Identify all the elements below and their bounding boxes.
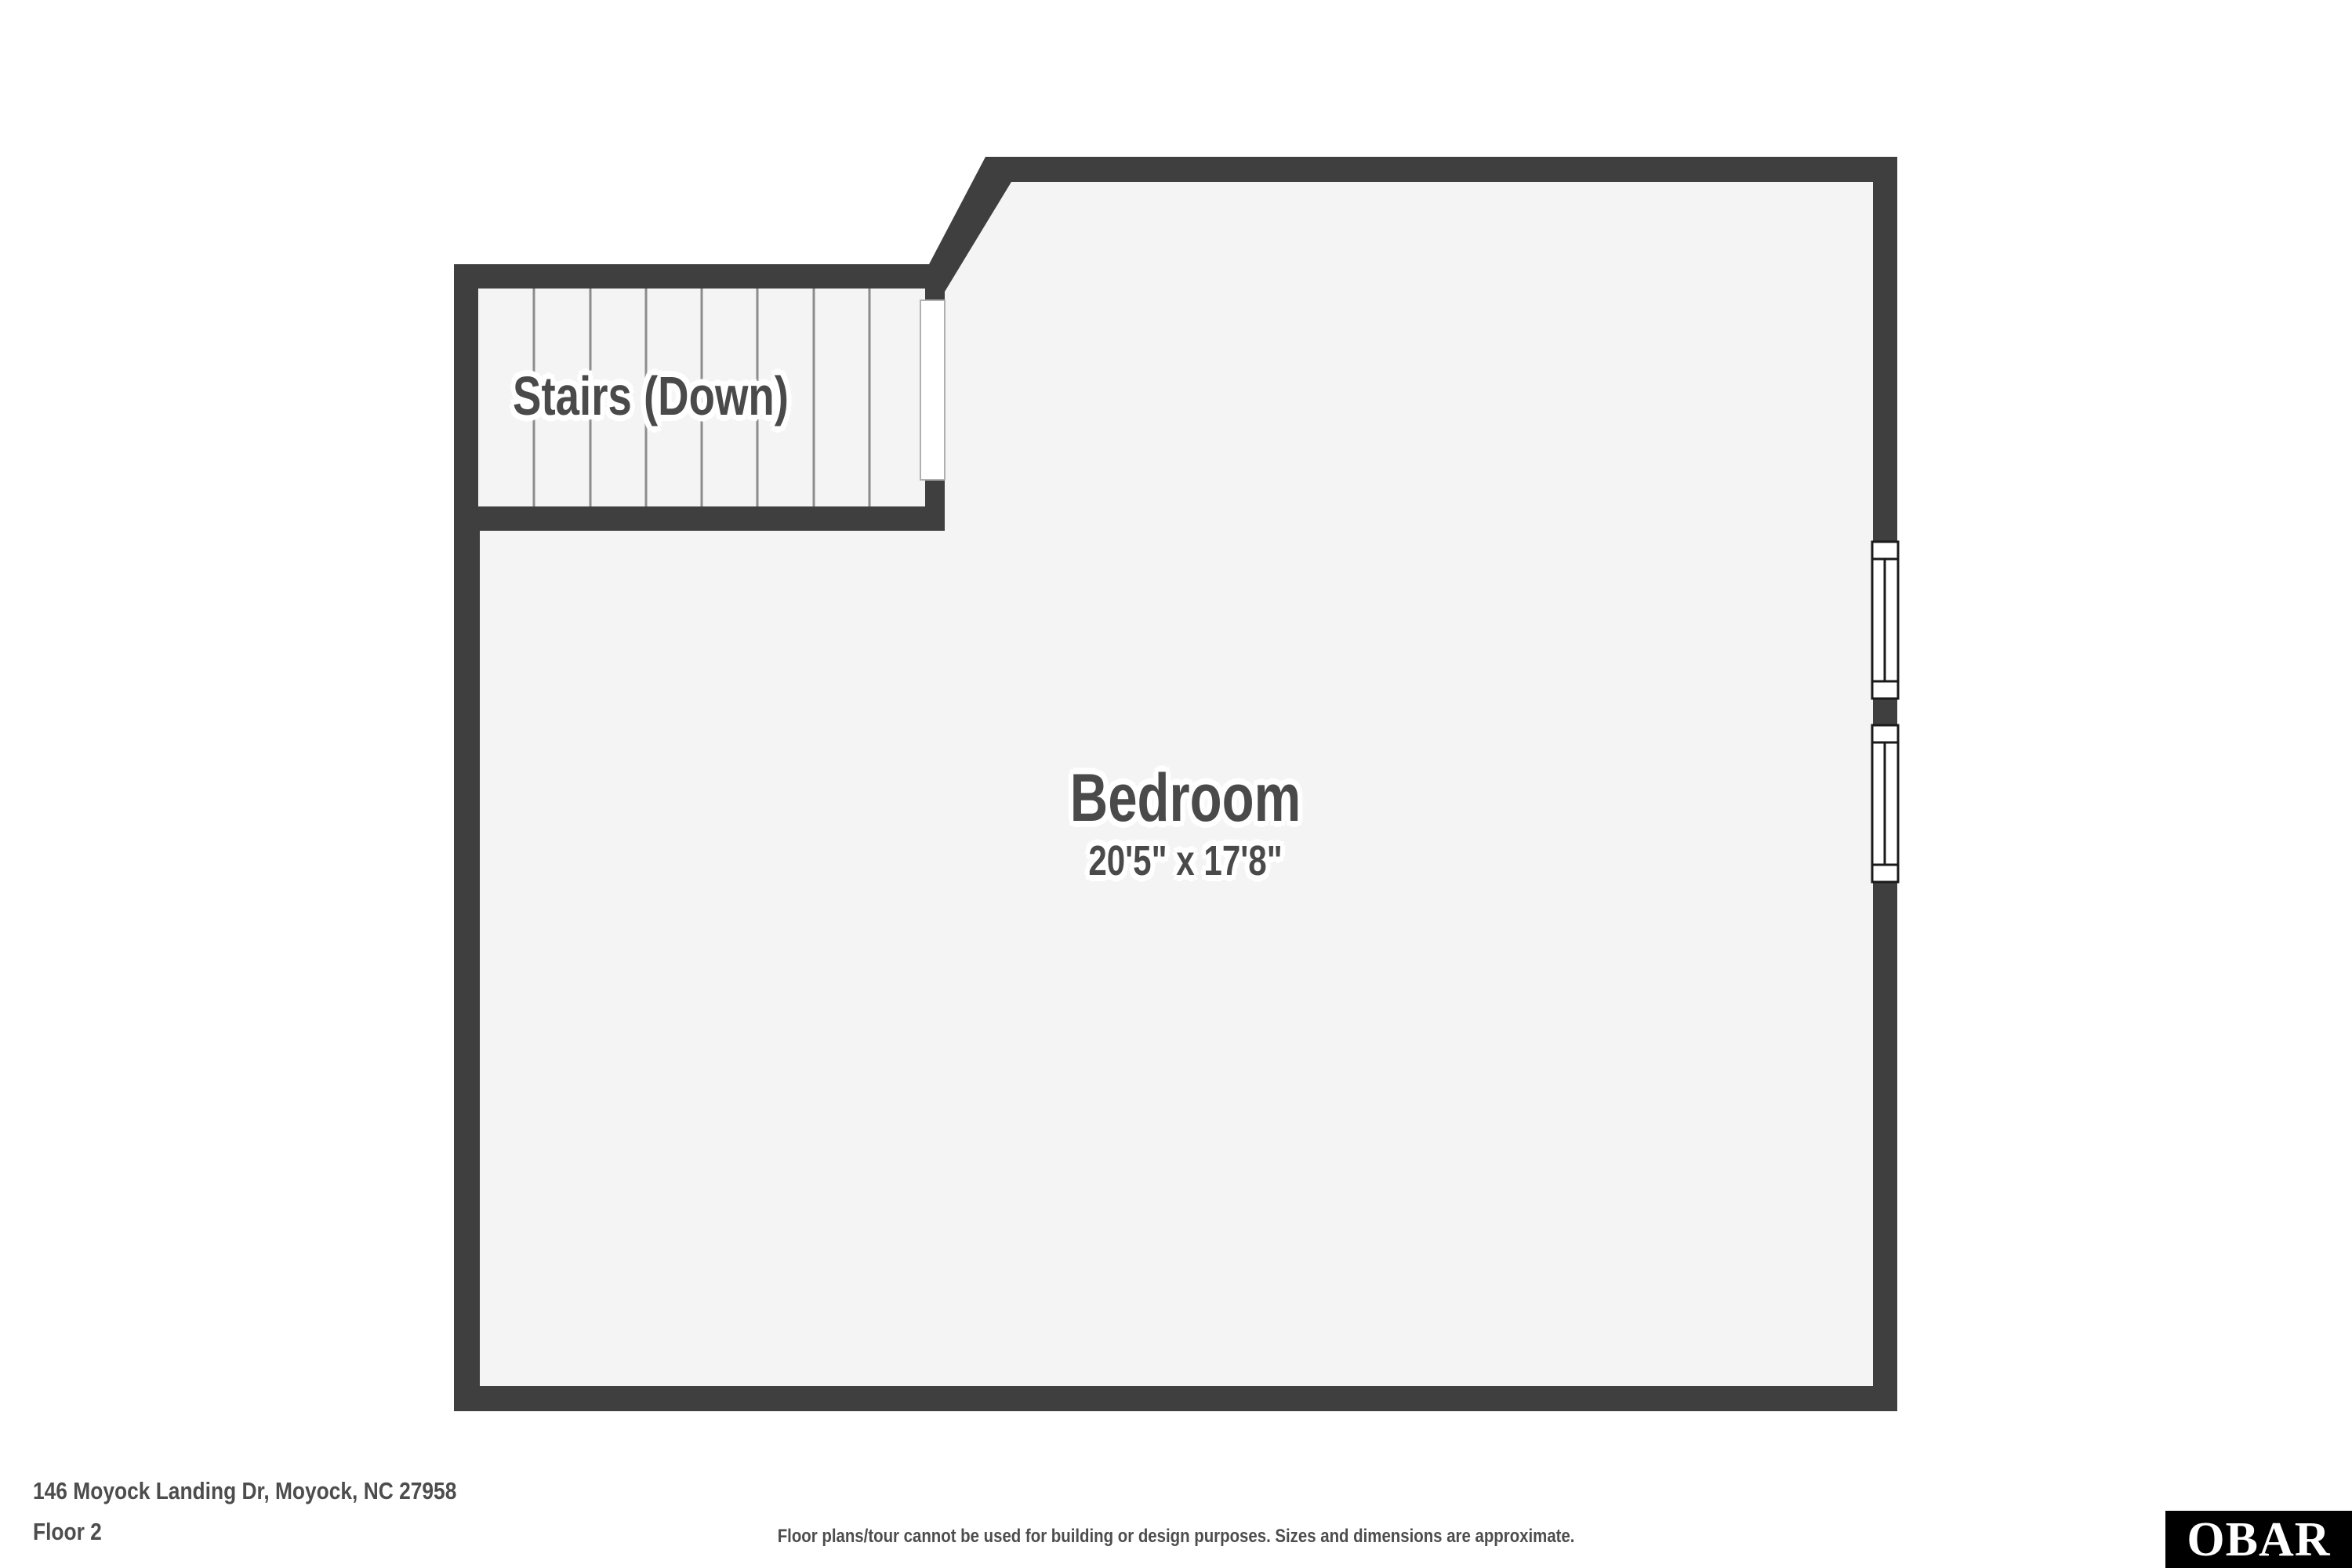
footer-disclaimer: Floor plans/tour cannot be used for buil…	[0, 1527, 2352, 1546]
stairs-label-text: Stairs (Down)	[513, 368, 789, 423]
window-upper	[1872, 542, 1898, 699]
bedroom-name-text: Bedroom	[1070, 764, 1301, 832]
bedroom-dimensions-label: 20'5" x 17'8"	[1061, 840, 1309, 882]
brand-logo: OBAR	[2165, 1511, 2352, 1568]
window-lower	[1872, 725, 1898, 882]
footer-address-text: 146 Moyock Landing Dr, Moyock, NC 27958	[33, 1479, 456, 1503]
stairs-label: Stairs (Down)	[474, 368, 827, 423]
brand-logo-text: OBAR	[2187, 1515, 2330, 1564]
footer-disclaimer-text: Floor plans/tour cannot be used for buil…	[778, 1527, 1575, 1546]
bedroom-dimensions-text: 20'5" x 17'8"	[1088, 840, 1282, 882]
stair-opening	[920, 300, 945, 480]
bedroom-name-label: Bedroom	[1037, 764, 1333, 832]
page: Stairs (Down) Bedroom 20'5" x 17'8" 146 …	[0, 0, 2352, 1568]
footer-address: 146 Moyock Landing Dr, Moyock, NC 27958	[33, 1479, 532, 1503]
